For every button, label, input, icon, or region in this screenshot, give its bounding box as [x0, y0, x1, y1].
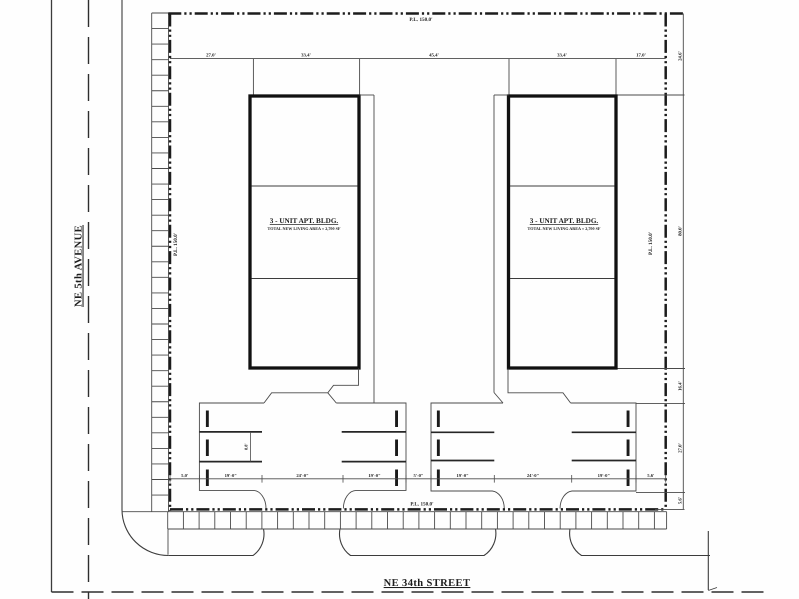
svg-text:8.8': 8.8' [244, 443, 249, 450]
svg-text:27.0': 27.0' [677, 443, 683, 453]
svg-text:80.0': 80.0' [677, 226, 683, 236]
svg-text:24'-0": 24'-0" [527, 473, 540, 478]
svg-text:19'-0": 19'-0" [225, 473, 238, 478]
svg-text:P.L. 150.0': P.L. 150.0' [409, 17, 433, 23]
svg-text:TOTAL NEW LIVING AREA = 2,700: TOTAL NEW LIVING AREA = 2,700 SF [268, 226, 341, 231]
svg-text:P.L. 150.0': P.L. 150.0' [648, 231, 654, 255]
svg-text:3 - UNIT APT. BLDG.: 3 - UNIT APT. BLDG. [530, 217, 599, 225]
svg-text:5'-0": 5'-0" [414, 473, 424, 478]
svg-text:5.0': 5.0' [181, 473, 188, 478]
svg-text:19'-0": 19'-0" [368, 473, 381, 478]
svg-text:5.6': 5.6' [677, 497, 683, 504]
svg-text:17.0': 17.0' [636, 53, 646, 59]
svg-text:19'-0": 19'-0" [456, 473, 469, 478]
svg-text:33.4': 33.4' [557, 53, 567, 59]
svg-text:24.6': 24.6' [677, 51, 683, 61]
svg-text:27.0': 27.0' [206, 53, 216, 59]
svg-text:5.6': 5.6' [647, 473, 654, 478]
svg-text:NE 34th STREET: NE 34th STREET [384, 578, 471, 589]
svg-text:24'-0": 24'-0" [296, 473, 309, 478]
svg-text:3 - UNIT APT. BLDG.: 3 - UNIT APT. BLDG. [270, 217, 339, 225]
svg-text:P.L. 150.0': P.L. 150.0' [410, 502, 434, 508]
svg-text:NE 5th AVENUE: NE 5th AVENUE [74, 225, 85, 307]
svg-text:33.4': 33.4' [301, 53, 311, 59]
svg-text:19'-0": 19'-0" [598, 473, 611, 478]
svg-text:16.4': 16.4' [677, 381, 683, 391]
svg-text:45.4': 45.4' [429, 53, 439, 59]
svg-text:P.L. 150.0': P.L. 150.0' [173, 232, 179, 256]
svg-text:TOTAL NEW LIVING AREA = 2,700: TOTAL NEW LIVING AREA = 2,700 SF [528, 226, 601, 231]
